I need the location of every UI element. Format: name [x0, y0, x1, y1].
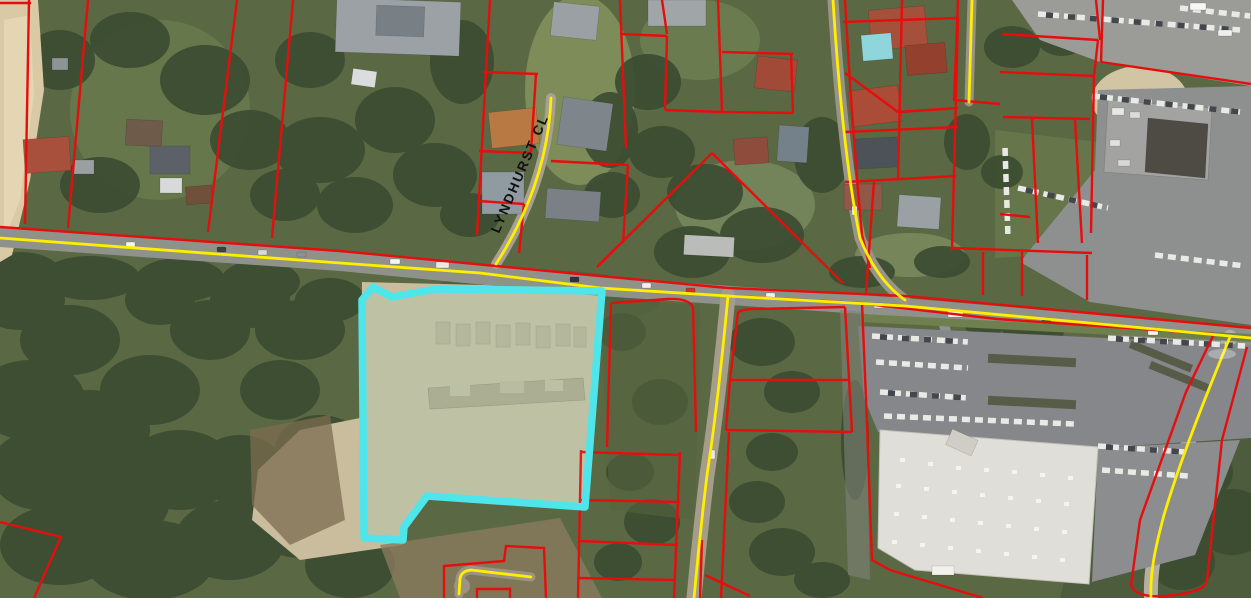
satellite-map[interactable]: LYNDHURST CL: [0, 0, 1251, 598]
selected-parcel[interactable]: [362, 287, 602, 540]
faded-watermark: [1208, 349, 1236, 359]
map-canvas[interactable]: LYNDHURST CL: [0, 0, 1251, 598]
warehouse-building: [878, 429, 1098, 584]
selected-parcel-outline: [362, 287, 602, 540]
house-roof: [23, 136, 71, 173]
swimming-pool: [861, 33, 893, 62]
